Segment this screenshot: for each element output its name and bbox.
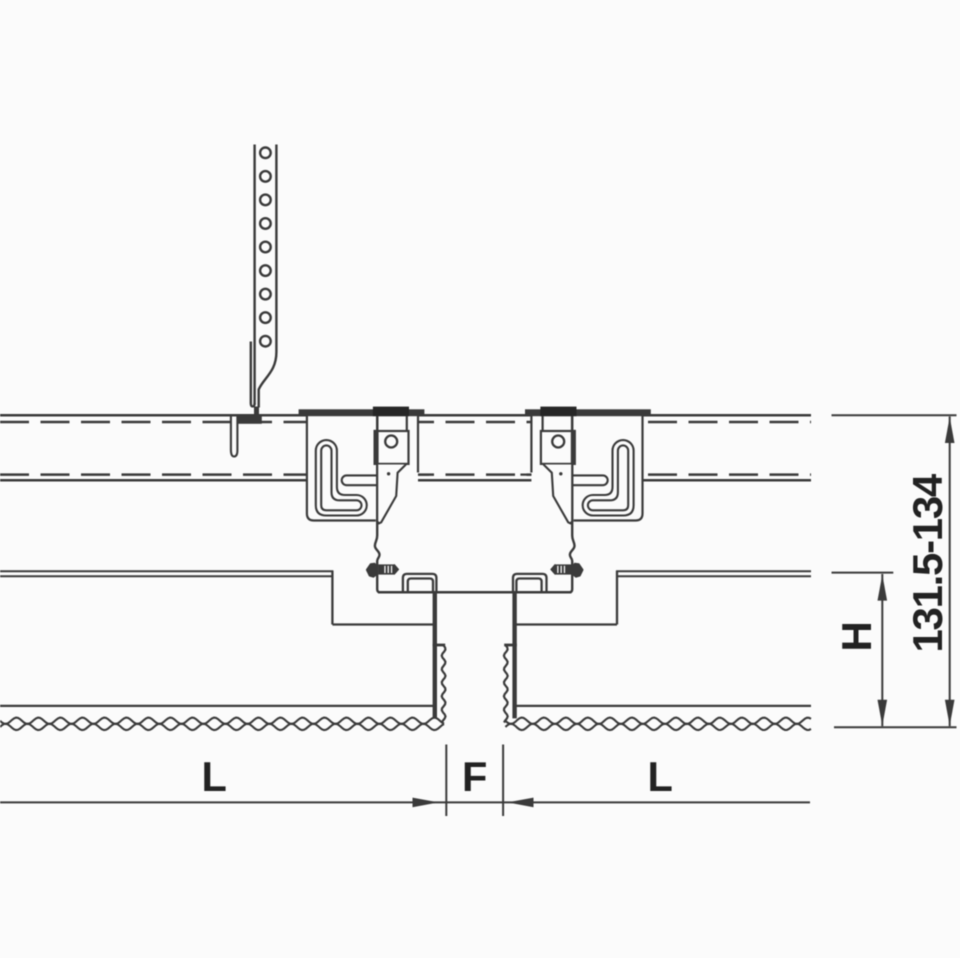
svg-text:131.5-134: 131.5-134 bbox=[904, 473, 951, 652]
svg-text:L: L bbox=[648, 753, 673, 800]
svg-text:H: H bbox=[833, 621, 880, 651]
svg-text:F: F bbox=[462, 753, 487, 800]
svg-text:L: L bbox=[202, 753, 227, 800]
